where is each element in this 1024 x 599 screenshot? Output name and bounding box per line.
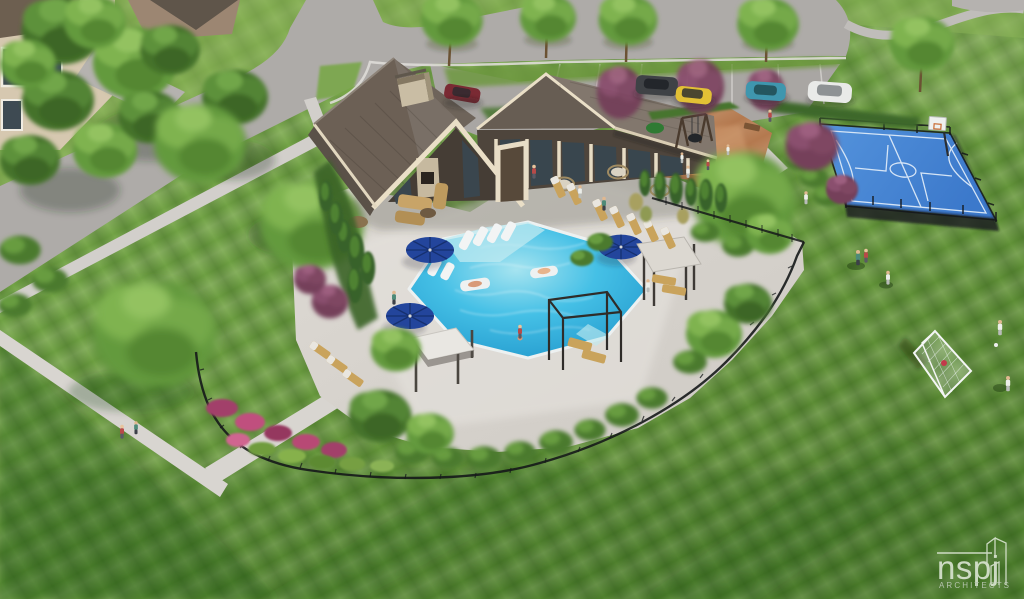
svg-text:ARCHITECTS: ARCHITECTS	[939, 581, 1011, 590]
